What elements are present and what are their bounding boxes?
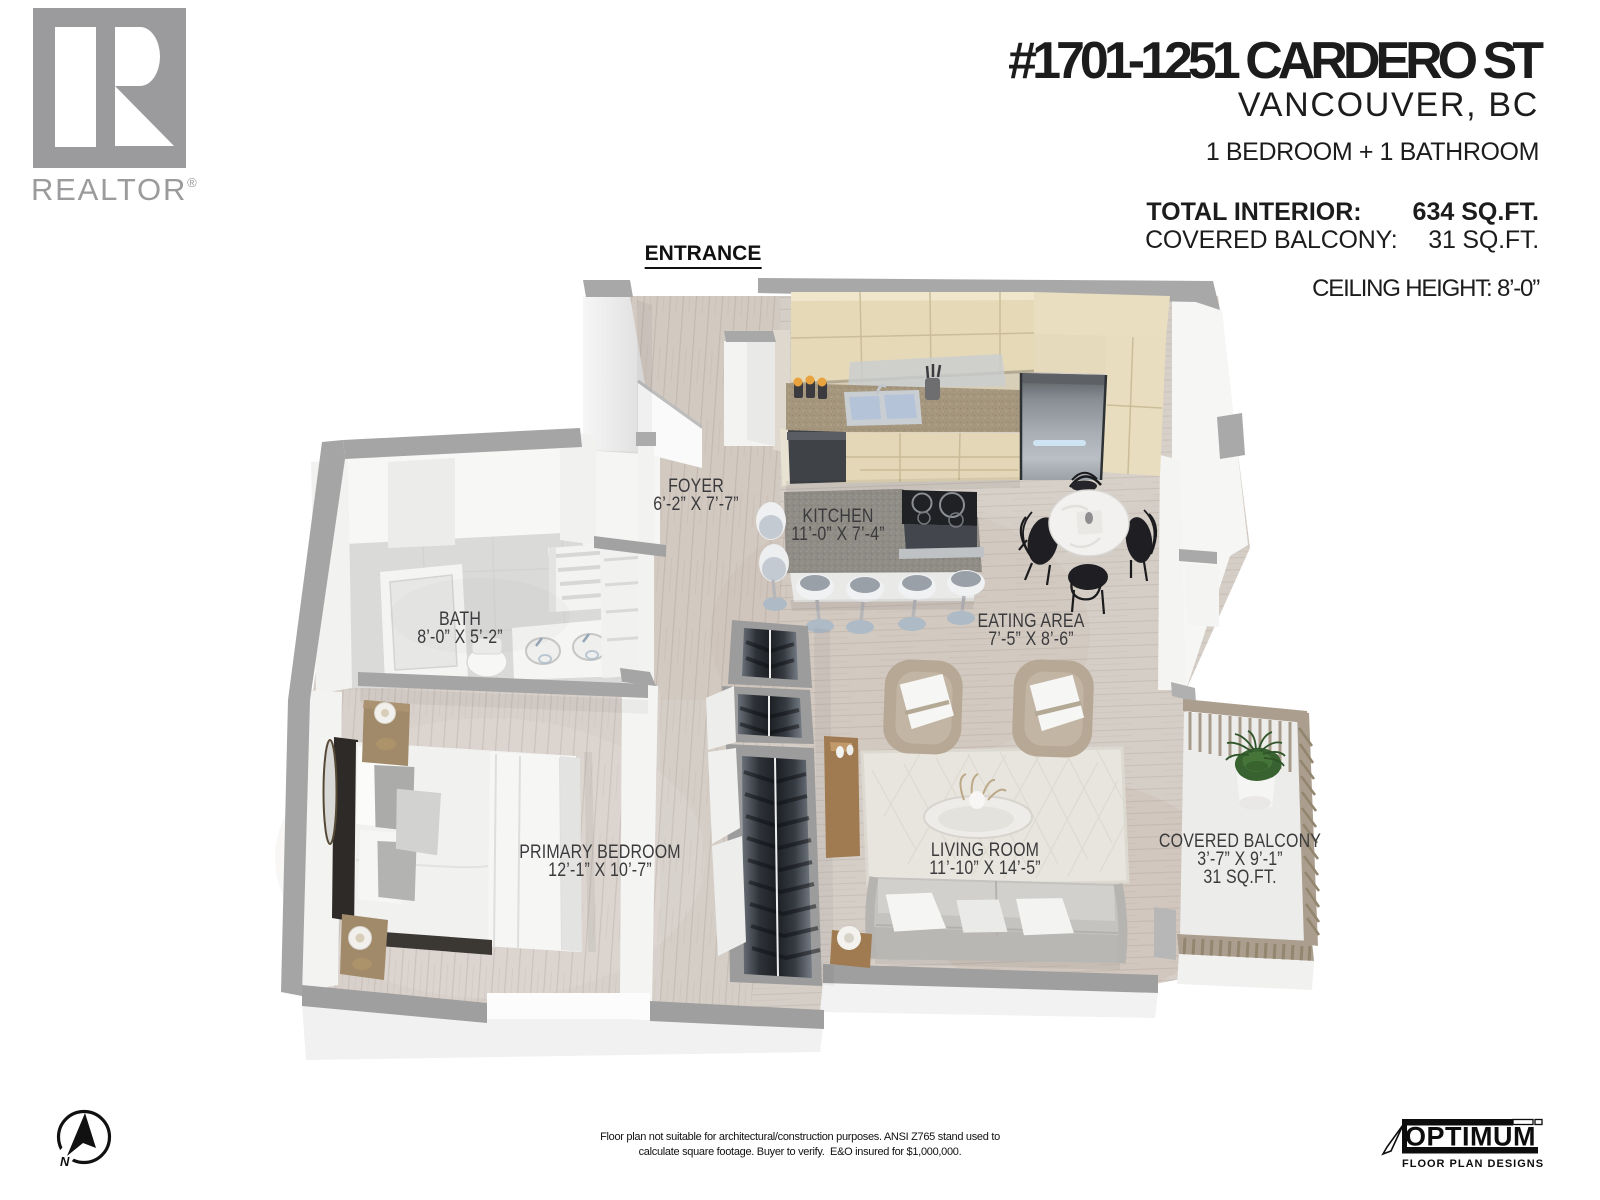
- svg-text:N: N: [60, 1154, 70, 1169]
- svg-text:FLOOR PLAN DESIGNS: FLOOR PLAN DESIGNS: [1402, 1158, 1544, 1170]
- svg-text:OPTIMUM: OPTIMUM: [1405, 1122, 1536, 1152]
